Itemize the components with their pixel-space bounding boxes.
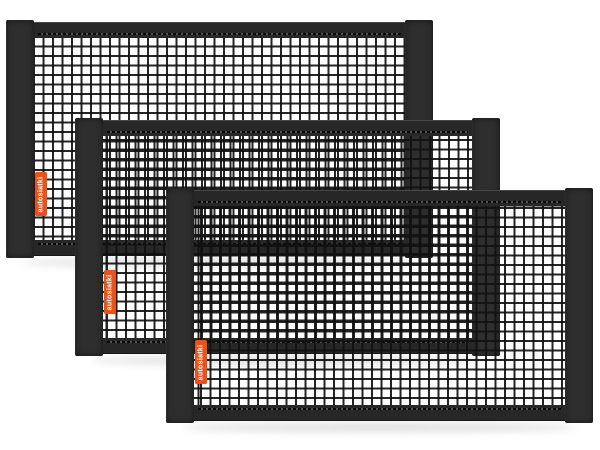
brand-label-text: autosiatki <box>38 176 45 212</box>
product-photo: autosiatki autosiatki autosiatki <box>0 0 600 450</box>
net-top-bar <box>30 22 409 38</box>
brand-label-text: autosiatki <box>107 274 114 310</box>
stitch-line <box>107 131 468 133</box>
brand-label: autosiatki <box>35 172 47 216</box>
net-right-strap <box>565 188 593 423</box>
brand-label: autosiatki <box>104 270 116 314</box>
net-shadow <box>182 423 577 432</box>
stitch-line <box>198 201 561 203</box>
stitch-line <box>198 408 561 410</box>
cargo-net-front: autosiatki <box>166 188 593 423</box>
net-left-strap <box>75 118 103 356</box>
brand-label: autosiatki <box>195 340 207 384</box>
stitch-line <box>38 33 401 35</box>
net-left-strap <box>6 20 34 258</box>
net-top-bar <box>99 120 476 136</box>
net-left-strap <box>166 188 194 423</box>
net-top-bar <box>190 190 569 206</box>
brand-label-text: autosiatki <box>198 344 205 380</box>
net-mesh <box>193 204 566 406</box>
net-bottom-bar <box>190 405 569 421</box>
